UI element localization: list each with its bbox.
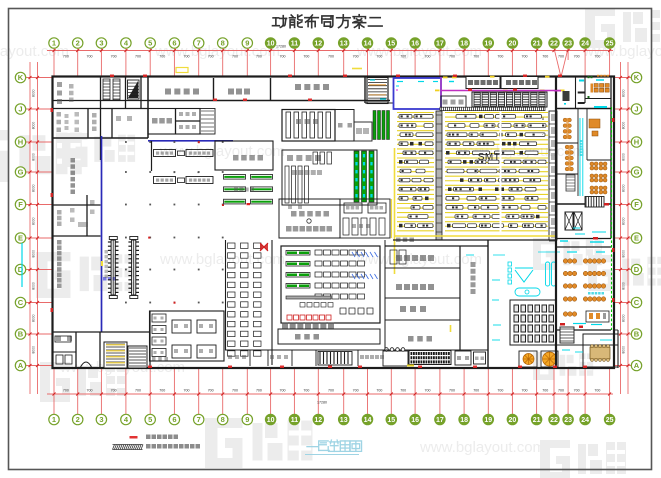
svg-text:SMT: SMT [478, 152, 501, 163]
svg-text:www.bglayout.com: www.bglayout.com [419, 439, 545, 456]
svg-text:700: 700 [256, 389, 262, 393]
svg-text:700: 700 [425, 389, 431, 393]
svg-text:3: 3 [99, 39, 103, 48]
svg-text:700: 700 [328, 55, 334, 59]
svg-text:700: 700 [184, 389, 190, 393]
svg-text:B: B [18, 330, 24, 339]
svg-text:700: 700 [135, 55, 141, 59]
svg-text:3: 3 [99, 415, 103, 424]
svg-text:G: G [634, 168, 640, 177]
svg-text:15: 15 [387, 40, 395, 47]
svg-text:J: J [18, 105, 22, 114]
svg-text:700: 700 [208, 55, 214, 59]
svg-text:8000: 8000 [32, 153, 36, 161]
svg-text:8000: 8000 [622, 250, 626, 258]
svg-text:22: 22 [550, 40, 558, 47]
svg-text:700: 700 [594, 55, 600, 59]
svg-text:5: 5 [148, 39, 152, 48]
svg-text:8000: 8000 [622, 314, 626, 322]
svg-text:700: 700 [542, 55, 548, 59]
svg-text:A: A [634, 361, 640, 370]
svg-text:E: E [634, 234, 639, 243]
svg-text:700: 700 [135, 389, 141, 393]
svg-text:700: 700 [574, 389, 580, 393]
svg-text:8: 8 [221, 39, 225, 48]
svg-text:700: 700 [159, 55, 165, 59]
svg-text:www.bglayout.com: www.bglayout.com [356, 251, 482, 268]
svg-text:www.bglayout.com: www.bglayout.com [159, 143, 285, 160]
svg-text:K: K [18, 73, 24, 82]
svg-text:11: 11 [291, 417, 299, 424]
svg-text:24: 24 [581, 417, 589, 424]
svg-text:8000: 8000 [32, 217, 36, 225]
svg-text:700: 700 [280, 389, 286, 393]
svg-text:5: 5 [148, 415, 152, 424]
svg-text:700: 700 [449, 55, 455, 59]
svg-text:700: 700 [87, 55, 93, 59]
svg-text:700: 700 [400, 55, 406, 59]
svg-text:15: 15 [387, 417, 395, 424]
svg-text:17: 17 [436, 417, 444, 424]
svg-text:25: 25 [606, 417, 614, 424]
svg-text:B: B [634, 330, 640, 339]
svg-text:8000: 8000 [32, 282, 36, 290]
svg-text:700: 700 [353, 389, 359, 393]
svg-text:700: 700 [558, 55, 564, 59]
svg-text:700: 700 [473, 55, 479, 59]
svg-text:7: 7 [197, 415, 201, 424]
svg-text:8000: 8000 [32, 250, 36, 258]
svg-text:14: 14 [364, 417, 372, 424]
svg-text:700: 700 [256, 55, 262, 59]
svg-text:17280: 17280 [276, 45, 286, 49]
svg-text:8000: 8000 [32, 122, 36, 130]
svg-text:17: 17 [436, 40, 444, 47]
svg-text:12: 12 [314, 40, 322, 47]
svg-text:700: 700 [376, 55, 382, 59]
svg-text:700: 700 [303, 55, 309, 59]
svg-text:21: 21 [533, 40, 541, 47]
svg-text:700: 700 [63, 389, 69, 393]
svg-text:16: 16 [411, 417, 419, 424]
svg-text:F: F [18, 200, 23, 209]
svg-text:700: 700 [232, 55, 238, 59]
svg-text:10: 10 [267, 40, 275, 47]
svg-text:13: 13 [340, 417, 348, 424]
svg-text:8000: 8000 [622, 282, 626, 290]
svg-text:700: 700 [111, 55, 117, 59]
svg-text:16: 16 [411, 40, 419, 47]
svg-text:13: 13 [340, 40, 348, 47]
svg-text:700: 700 [111, 389, 117, 393]
svg-text:700: 700 [473, 389, 479, 393]
svg-text:22: 22 [550, 417, 558, 424]
svg-text:700: 700 [208, 389, 214, 393]
svg-text:www.bglayout.com: www.bglayout.com [159, 251, 285, 268]
svg-text:6: 6 [172, 415, 176, 424]
svg-text:8000: 8000 [622, 217, 626, 225]
svg-text:23: 23 [564, 40, 572, 47]
svg-text:D: D [18, 265, 24, 274]
svg-text:8000: 8000 [622, 153, 626, 161]
svg-text:700: 700 [353, 55, 359, 59]
svg-text:700: 700 [522, 55, 528, 59]
svg-text:700: 700 [558, 389, 564, 393]
svg-text:8000: 8000 [32, 89, 36, 97]
svg-text:14: 14 [364, 40, 372, 47]
svg-text:18: 18 [460, 417, 468, 424]
svg-text:G: G [18, 168, 24, 177]
svg-text:9: 9 [245, 415, 249, 424]
svg-text:17280: 17280 [317, 401, 327, 405]
svg-text:700: 700 [328, 389, 334, 393]
svg-text:700: 700 [542, 389, 548, 393]
svg-text:E: E [18, 234, 23, 243]
svg-text:20: 20 [509, 417, 517, 424]
svg-text:F: F [634, 200, 639, 209]
svg-text:8000: 8000 [32, 346, 36, 354]
svg-text:9: 9 [245, 39, 249, 48]
svg-text:J: J [634, 105, 638, 114]
svg-text:700: 700 [497, 389, 503, 393]
svg-text:8000: 8000 [622, 89, 626, 97]
svg-text:700: 700 [594, 389, 600, 393]
svg-text:6: 6 [172, 39, 176, 48]
svg-text:700: 700 [449, 389, 455, 393]
svg-text:K: K [634, 73, 640, 82]
svg-text:8: 8 [221, 415, 225, 424]
svg-text:700: 700 [232, 389, 238, 393]
svg-text:700: 700 [159, 389, 165, 393]
svg-text:23: 23 [564, 417, 572, 424]
svg-text:18: 18 [460, 40, 468, 47]
svg-text:700: 700 [400, 389, 406, 393]
svg-text:11: 11 [291, 40, 299, 47]
svg-text:C: C [634, 298, 640, 307]
svg-text:12: 12 [314, 417, 322, 424]
svg-text:C: C [18, 298, 24, 307]
svg-text:700: 700 [280, 55, 286, 59]
svg-text:8000: 8000 [32, 184, 36, 192]
svg-text:19: 19 [484, 40, 492, 47]
svg-text:1: 1 [52, 39, 56, 48]
svg-text:700: 700 [376, 389, 382, 393]
svg-text:700: 700 [522, 389, 528, 393]
svg-text:24: 24 [581, 40, 589, 47]
svg-text:7: 7 [197, 39, 201, 48]
svg-text:1: 1 [52, 415, 56, 424]
svg-text:19: 19 [484, 417, 492, 424]
svg-text:2: 2 [76, 39, 80, 48]
svg-text:20: 20 [509, 40, 517, 47]
svg-text:H: H [18, 138, 23, 147]
svg-text:25: 25 [606, 40, 614, 47]
svg-text:700: 700 [184, 55, 190, 59]
svg-text:700: 700 [303, 389, 309, 393]
svg-text:8000: 8000 [622, 184, 626, 192]
svg-text:10: 10 [267, 417, 275, 424]
svg-text:700: 700 [425, 55, 431, 59]
svg-text:700: 700 [87, 389, 93, 393]
svg-text:700: 700 [63, 55, 69, 59]
svg-text:8000: 8000 [622, 346, 626, 354]
svg-text:A: A [18, 361, 24, 370]
svg-text:700: 700 [574, 55, 580, 59]
svg-text:2: 2 [76, 415, 80, 424]
svg-text:700: 700 [497, 55, 503, 59]
svg-text:8000: 8000 [32, 314, 36, 322]
svg-text:H: H [634, 138, 639, 147]
svg-text:21: 21 [533, 417, 541, 424]
svg-text:8000: 8000 [622, 122, 626, 130]
svg-text:D: D [634, 265, 640, 274]
